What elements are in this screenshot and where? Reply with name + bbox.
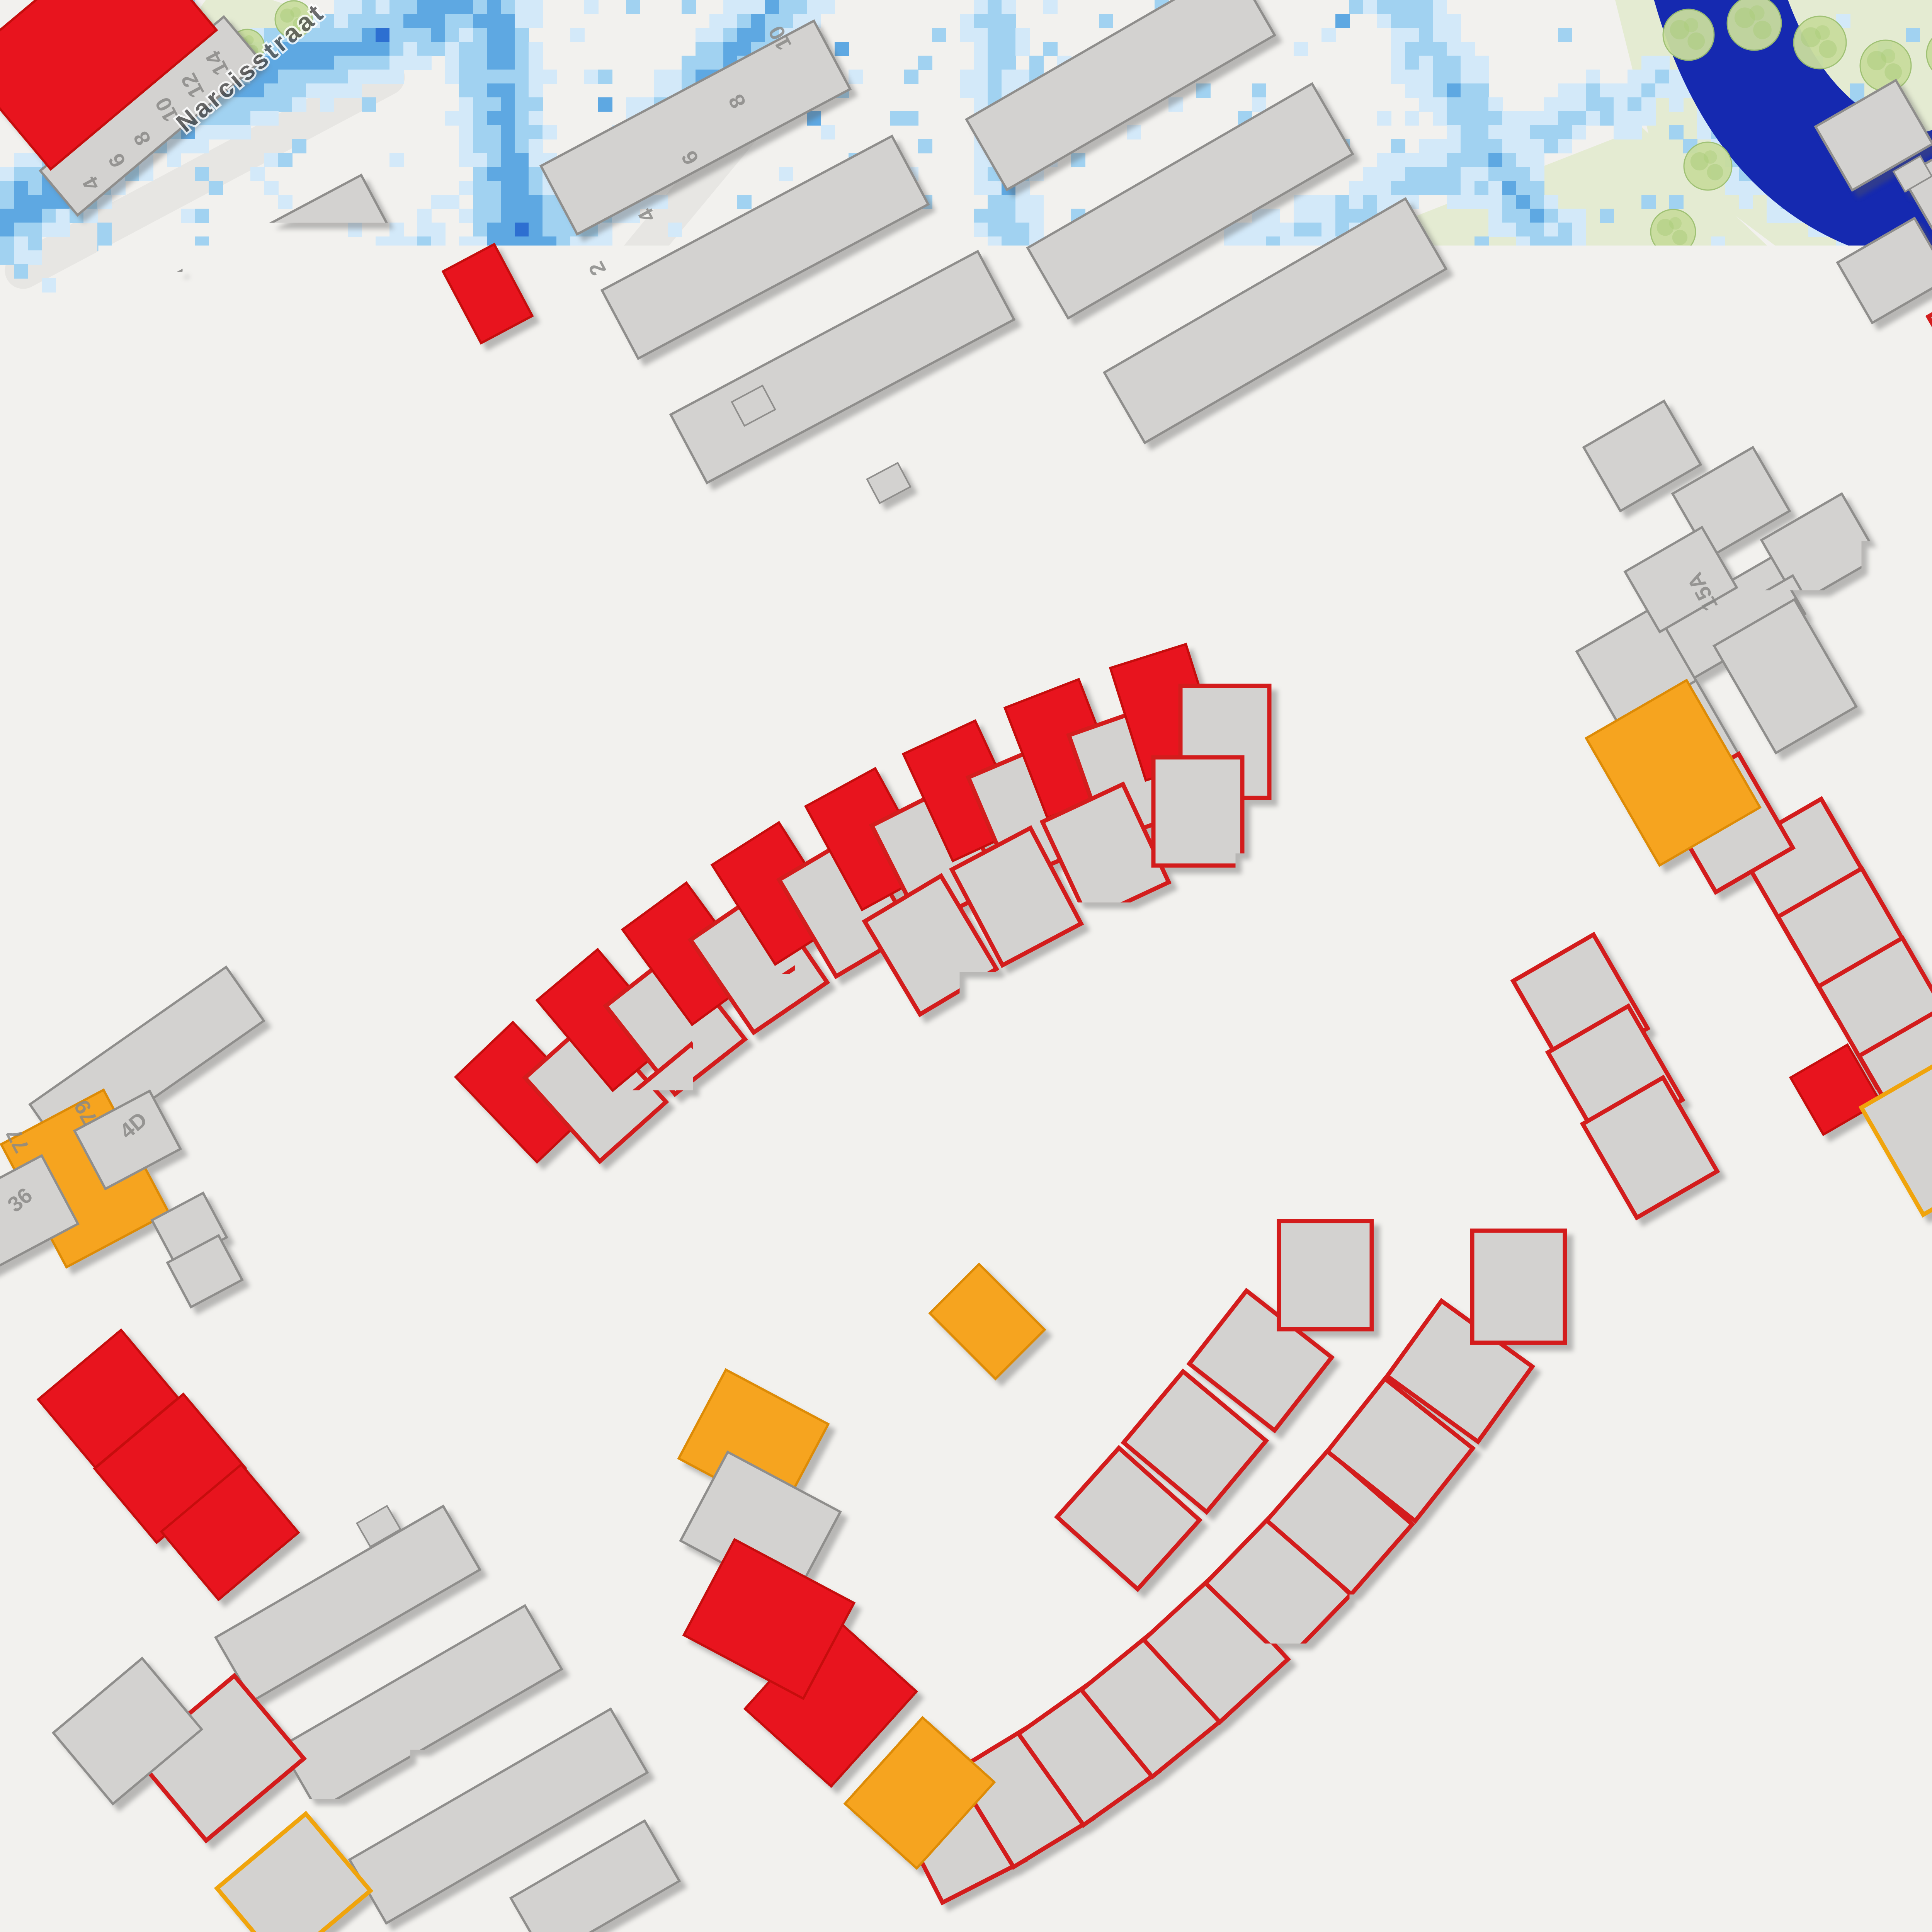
tree-symbol	[492, 468, 536, 513]
tree-symbol	[1651, 209, 1696, 254]
tree-symbol	[1175, 537, 1221, 583]
tree-symbol	[1794, 16, 1846, 69]
tree-symbol	[549, 503, 594, 548]
tree-symbol	[1663, 9, 1714, 60]
playground-circle	[1269, 419, 1378, 527]
tree-symbol	[530, 774, 575, 818]
tree-symbol	[1187, 480, 1240, 532]
tree-symbol	[1125, 515, 1170, 560]
tree-symbol	[1073, 560, 1121, 607]
tree-symbol	[3, 849, 43, 889]
tree-symbol	[1118, 1126, 1169, 1177]
tree-symbol	[216, 730, 263, 777]
tree-symbol	[316, 745, 364, 793]
tree-symbol	[1302, 545, 1356, 599]
tree-symbol	[1684, 142, 1732, 190]
tree-symbol	[1235, 566, 1284, 616]
tree-symbol	[58, 869, 97, 908]
tree-symbol	[1020, 591, 1066, 638]
tree-symbol	[1860, 40, 1911, 91]
building-outlined-red	[1153, 757, 1242, 866]
tree-symbol	[1185, 1096, 1234, 1145]
tree-symbol	[1727, 0, 1781, 50]
tree-symbol	[1071, 1160, 1116, 1205]
flood-map: 46810121424681015A1719212397232527293133…	[0, 0, 1932, 1932]
tree-symbol	[886, 1311, 930, 1355]
tree-symbol	[1352, 1634, 1400, 1682]
tree-symbol	[434, 434, 478, 478]
tree-symbol	[468, 730, 514, 777]
map-viewport[interactable]: 46810121424681015A1719212397232527293133…	[0, 0, 1932, 1932]
tree-symbol	[608, 539, 651, 582]
